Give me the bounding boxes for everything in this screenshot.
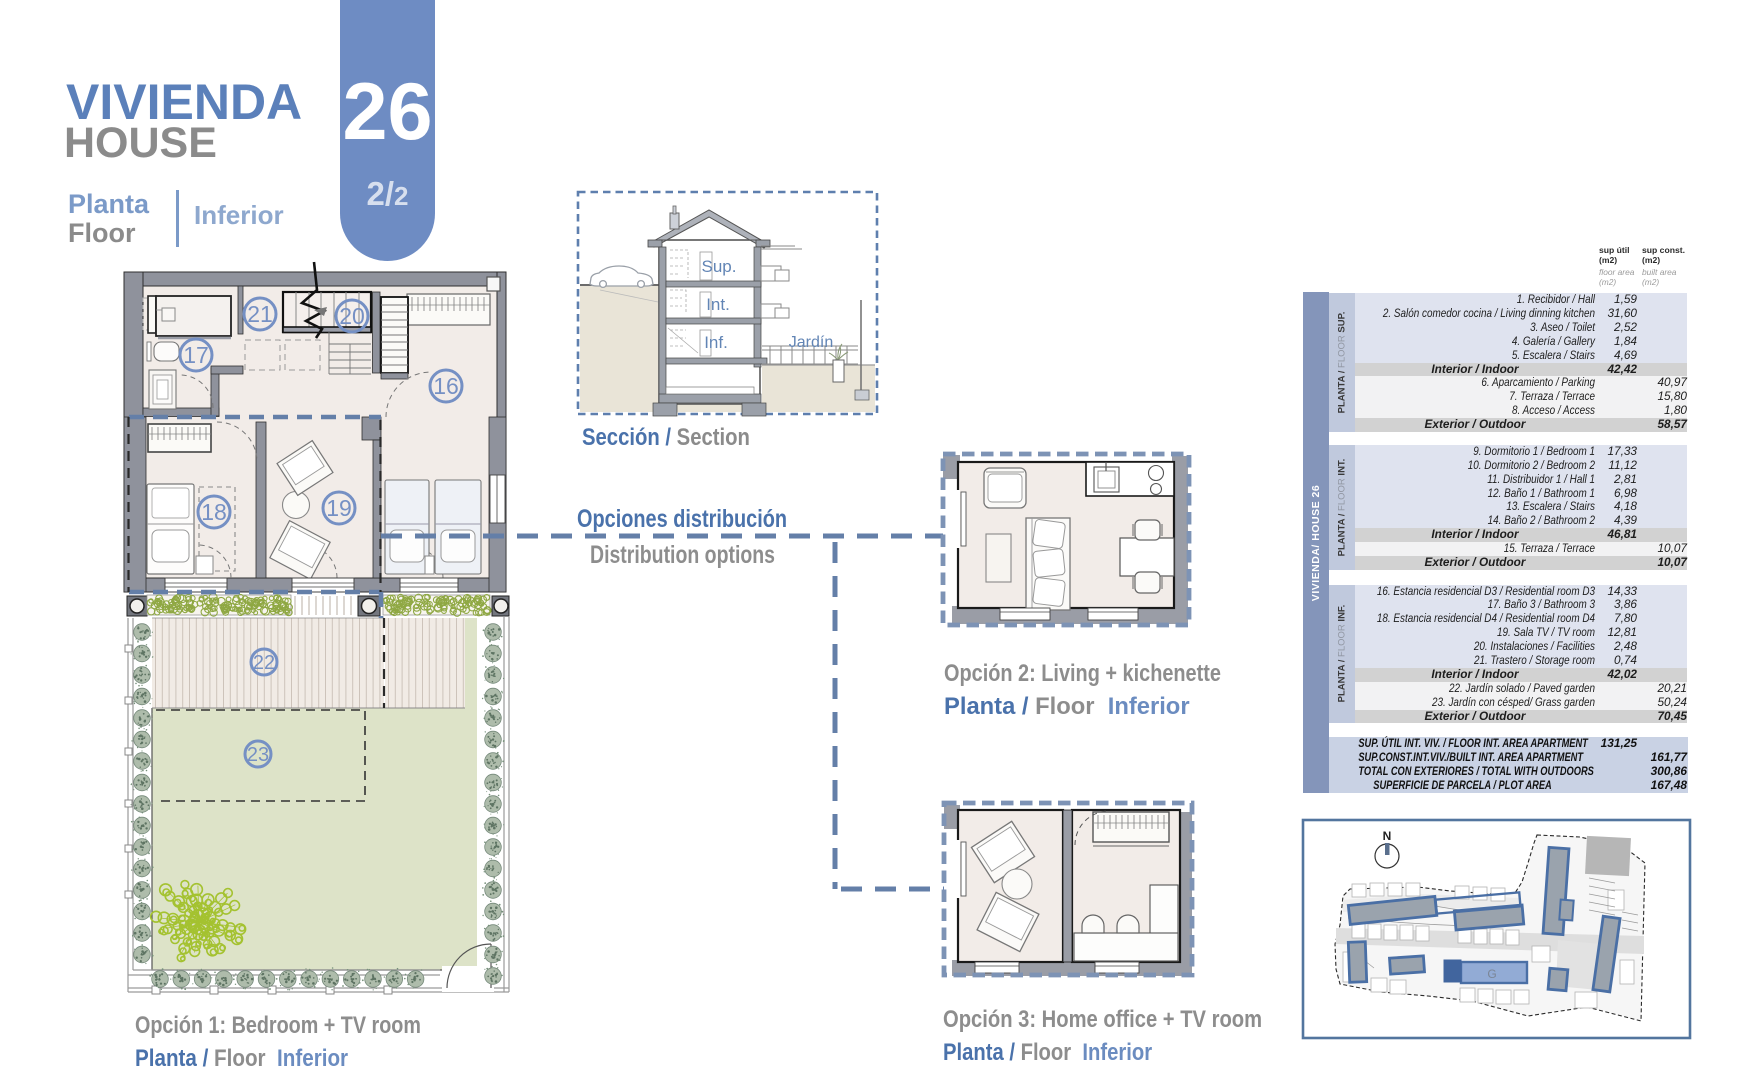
svg-text:G: G (1487, 967, 1496, 981)
svg-text:Sup.: Sup. (702, 257, 737, 276)
svg-text:20: 20 (339, 303, 365, 329)
svg-text:19: 19 (326, 495, 352, 521)
svg-text:22: 22 (253, 652, 275, 674)
svg-text:N: N (1383, 829, 1392, 843)
svg-text:Jardín: Jardín (789, 334, 833, 351)
svg-text:21: 21 (247, 301, 273, 327)
svg-text:Int.: Int. (706, 295, 730, 314)
svg-text:23: 23 (247, 744, 269, 766)
svg-text:18: 18 (201, 499, 227, 525)
svg-text:Inf.: Inf. (704, 333, 728, 352)
svg-text:16: 16 (433, 373, 459, 399)
svg-text:17: 17 (183, 342, 209, 368)
